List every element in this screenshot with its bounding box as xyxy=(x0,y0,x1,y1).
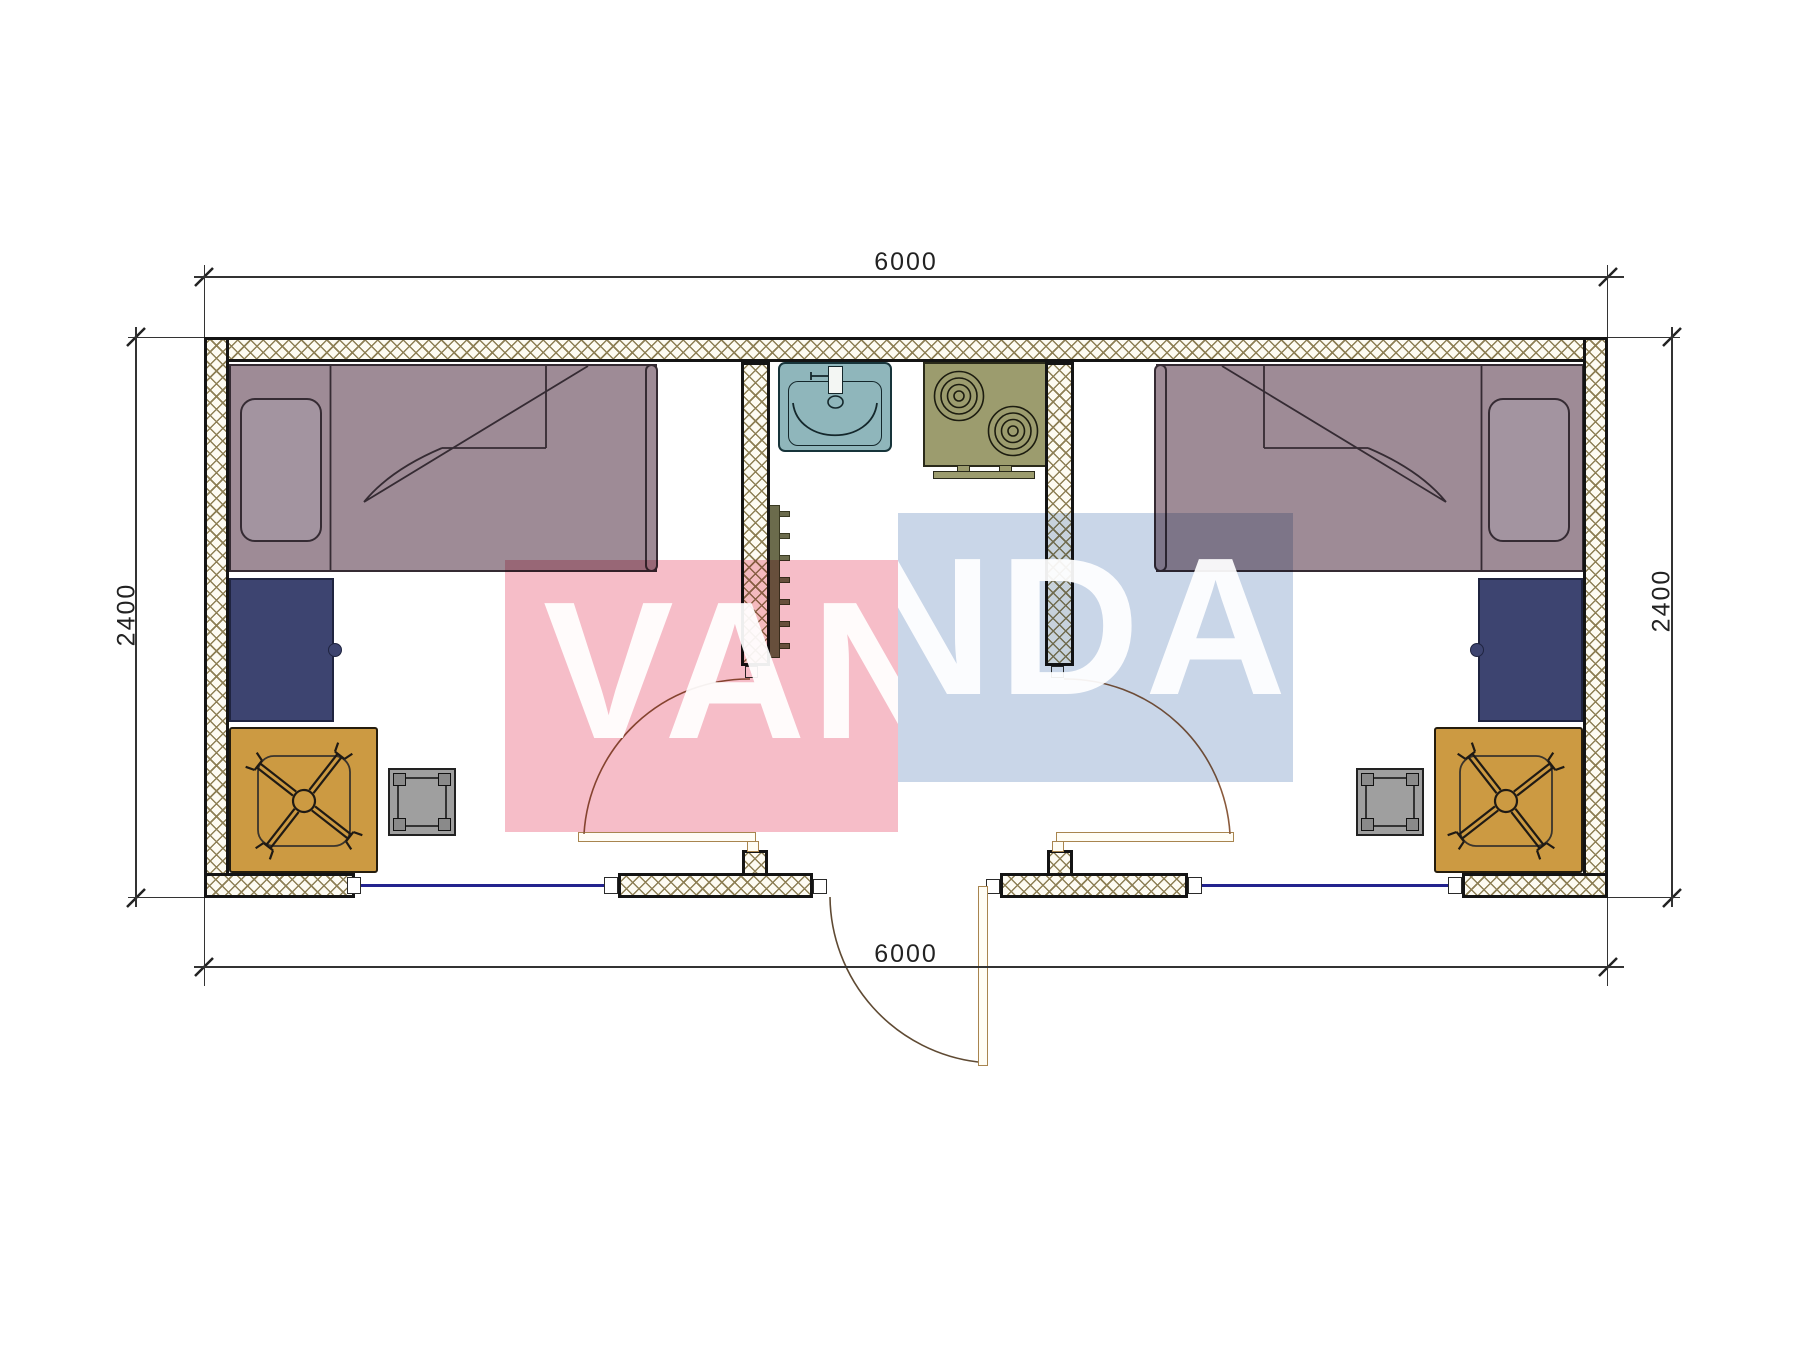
window-jamb xyxy=(604,877,618,894)
stool-corner xyxy=(1361,773,1374,786)
stool-corner xyxy=(1406,773,1419,786)
door-leaf-left-room xyxy=(578,832,756,842)
extension-line xyxy=(1607,898,1609,986)
floor-plan-canvas: 6000 6000 2400 2400 VANDA VANDA xyxy=(0,0,1800,1350)
wall-left xyxy=(204,337,229,898)
watermark-text-pink-clip: VANDA xyxy=(505,560,898,832)
stool-corner xyxy=(393,773,406,786)
desk-left xyxy=(229,578,334,722)
window-jamb xyxy=(347,877,361,894)
wall-bottom-segment-right xyxy=(1000,873,1188,898)
extension-line xyxy=(1608,337,1680,339)
radiator-fin xyxy=(779,533,790,539)
extension-line xyxy=(204,898,206,986)
stool-corner xyxy=(1361,818,1374,831)
stool-corner xyxy=(438,818,451,831)
stool-right xyxy=(1356,768,1424,836)
extension-line xyxy=(204,265,206,337)
sink-faucet xyxy=(828,366,843,394)
dimension-label-bottom: 6000 xyxy=(856,940,956,969)
stool-corner xyxy=(393,818,406,831)
wall-bottom-left xyxy=(204,873,355,898)
extension-line xyxy=(1608,897,1680,899)
door-hinge-left-room xyxy=(747,841,759,852)
table-right xyxy=(1434,727,1583,873)
door-jamb xyxy=(813,879,827,894)
door-leaf-right-room xyxy=(1056,832,1234,842)
watermark-text: VANDA xyxy=(543,573,898,769)
wall-bottom-segment-left xyxy=(618,873,813,898)
stove-bracket xyxy=(933,471,1035,479)
window-jamb xyxy=(1188,877,1202,894)
table-left xyxy=(229,727,378,873)
door-swing-arc-exterior xyxy=(830,897,978,1062)
extension-line xyxy=(128,897,204,899)
stool-left xyxy=(388,768,456,836)
pillow-left xyxy=(240,398,322,542)
door-leaf-exterior xyxy=(978,886,988,1066)
door-jamb xyxy=(986,879,1000,894)
dimension-label-top: 6000 xyxy=(856,248,956,277)
watermark-text: VANDA xyxy=(898,529,1291,725)
window-jamb xyxy=(1448,877,1462,894)
stool-corner xyxy=(1406,818,1419,831)
stool-corner xyxy=(438,773,451,786)
extension-line xyxy=(128,337,204,339)
desk-right-knob xyxy=(1470,643,1484,657)
wall-bottom-right xyxy=(1462,873,1608,898)
pillow-right xyxy=(1488,398,1570,542)
watermark-text-blue-clip: VANDA xyxy=(898,513,1293,782)
window-left xyxy=(361,884,604,887)
desk-left-knob xyxy=(328,643,342,657)
wall-top xyxy=(204,337,1608,362)
stove xyxy=(923,362,1047,467)
desk-right xyxy=(1478,578,1583,722)
radiator-fin xyxy=(779,511,790,517)
extension-line xyxy=(1607,265,1609,337)
window-right xyxy=(1202,884,1448,887)
door-hinge-right-room xyxy=(1052,841,1064,852)
bed-left-footboard xyxy=(645,364,658,572)
dimension-label-right: 2400 xyxy=(1648,561,1677,641)
wall-right xyxy=(1583,337,1608,898)
dimension-label-left: 2400 xyxy=(113,575,142,655)
